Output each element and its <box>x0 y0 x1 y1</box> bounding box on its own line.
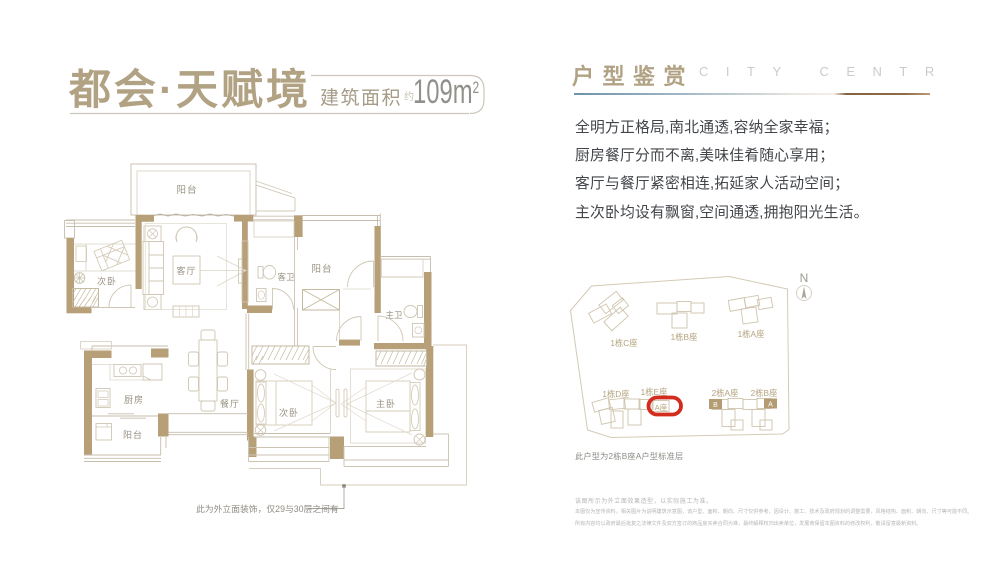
svg-text:A: A <box>768 401 773 408</box>
svg-text:2栋A座: 2栋A座 <box>712 388 739 398</box>
svg-text:1栋D座: 1栋D座 <box>602 389 629 399</box>
svg-text:N: N <box>800 271 809 285</box>
svg-text:1栋C座: 1栋C座 <box>610 338 637 348</box>
svg-text:1栋E座: 1栋E座 <box>641 387 668 397</box>
svg-text:1栋A座: 1栋A座 <box>738 329 765 339</box>
svg-text:1栋B座: 1栋B座 <box>671 332 698 342</box>
svg-text:A座: A座 <box>655 402 668 412</box>
svg-text:B: B <box>713 402 718 409</box>
svg-text:2栋B座: 2栋B座 <box>751 388 778 398</box>
